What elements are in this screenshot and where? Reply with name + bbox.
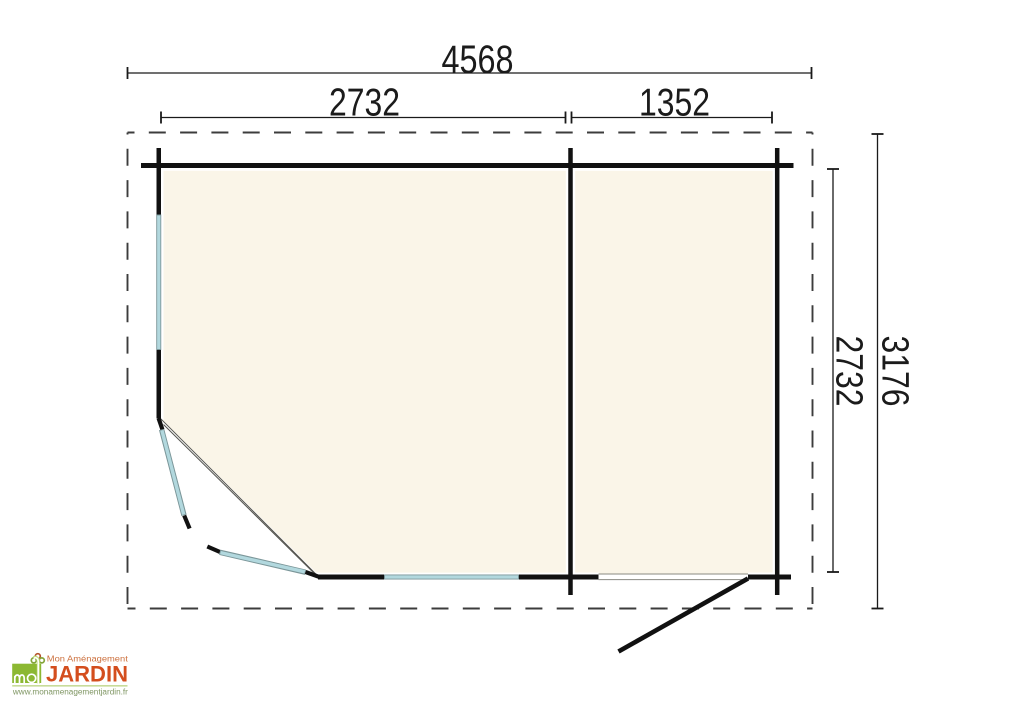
svg-text:2732: 2732 xyxy=(828,336,870,407)
svg-text:1352: 1352 xyxy=(639,82,710,125)
svg-text:www.monamenagementjardin.fr: www.monamenagementjardin.fr xyxy=(12,688,128,697)
svg-text:2732: 2732 xyxy=(329,82,400,125)
svg-text:3176: 3176 xyxy=(874,336,916,407)
svg-text:4568: 4568 xyxy=(442,38,514,82)
svg-text:JARDIN: JARDIN xyxy=(46,662,128,687)
